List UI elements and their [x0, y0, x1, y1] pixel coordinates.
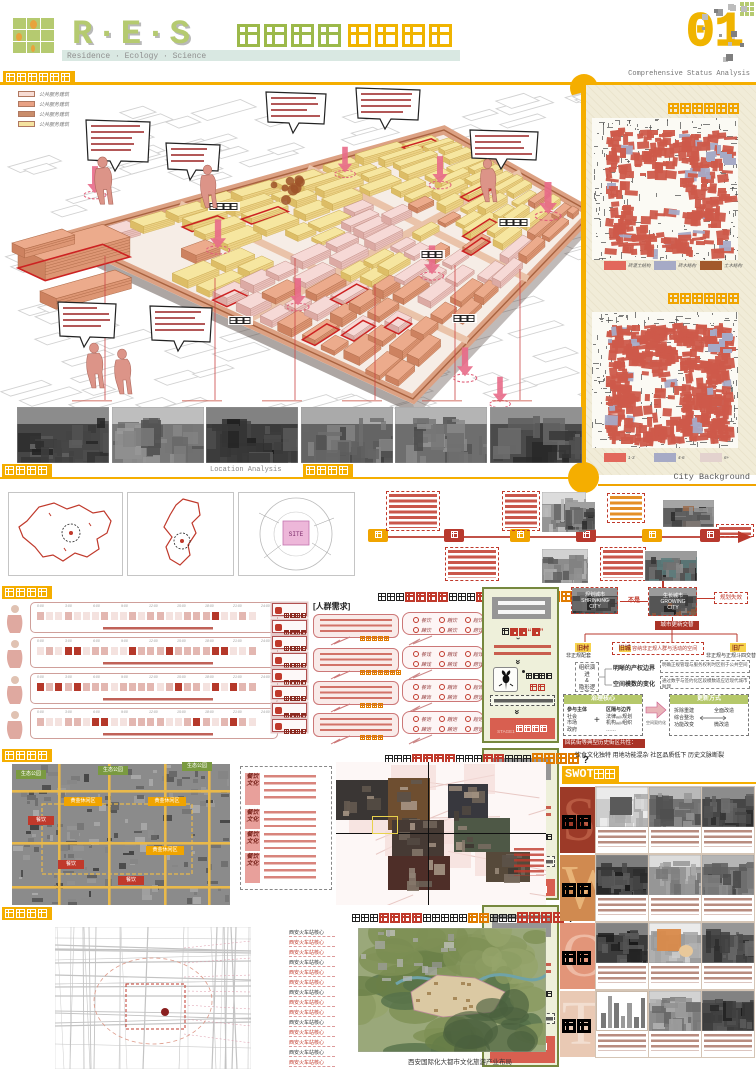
svg-text:SITE: SITE [289, 531, 304, 538]
